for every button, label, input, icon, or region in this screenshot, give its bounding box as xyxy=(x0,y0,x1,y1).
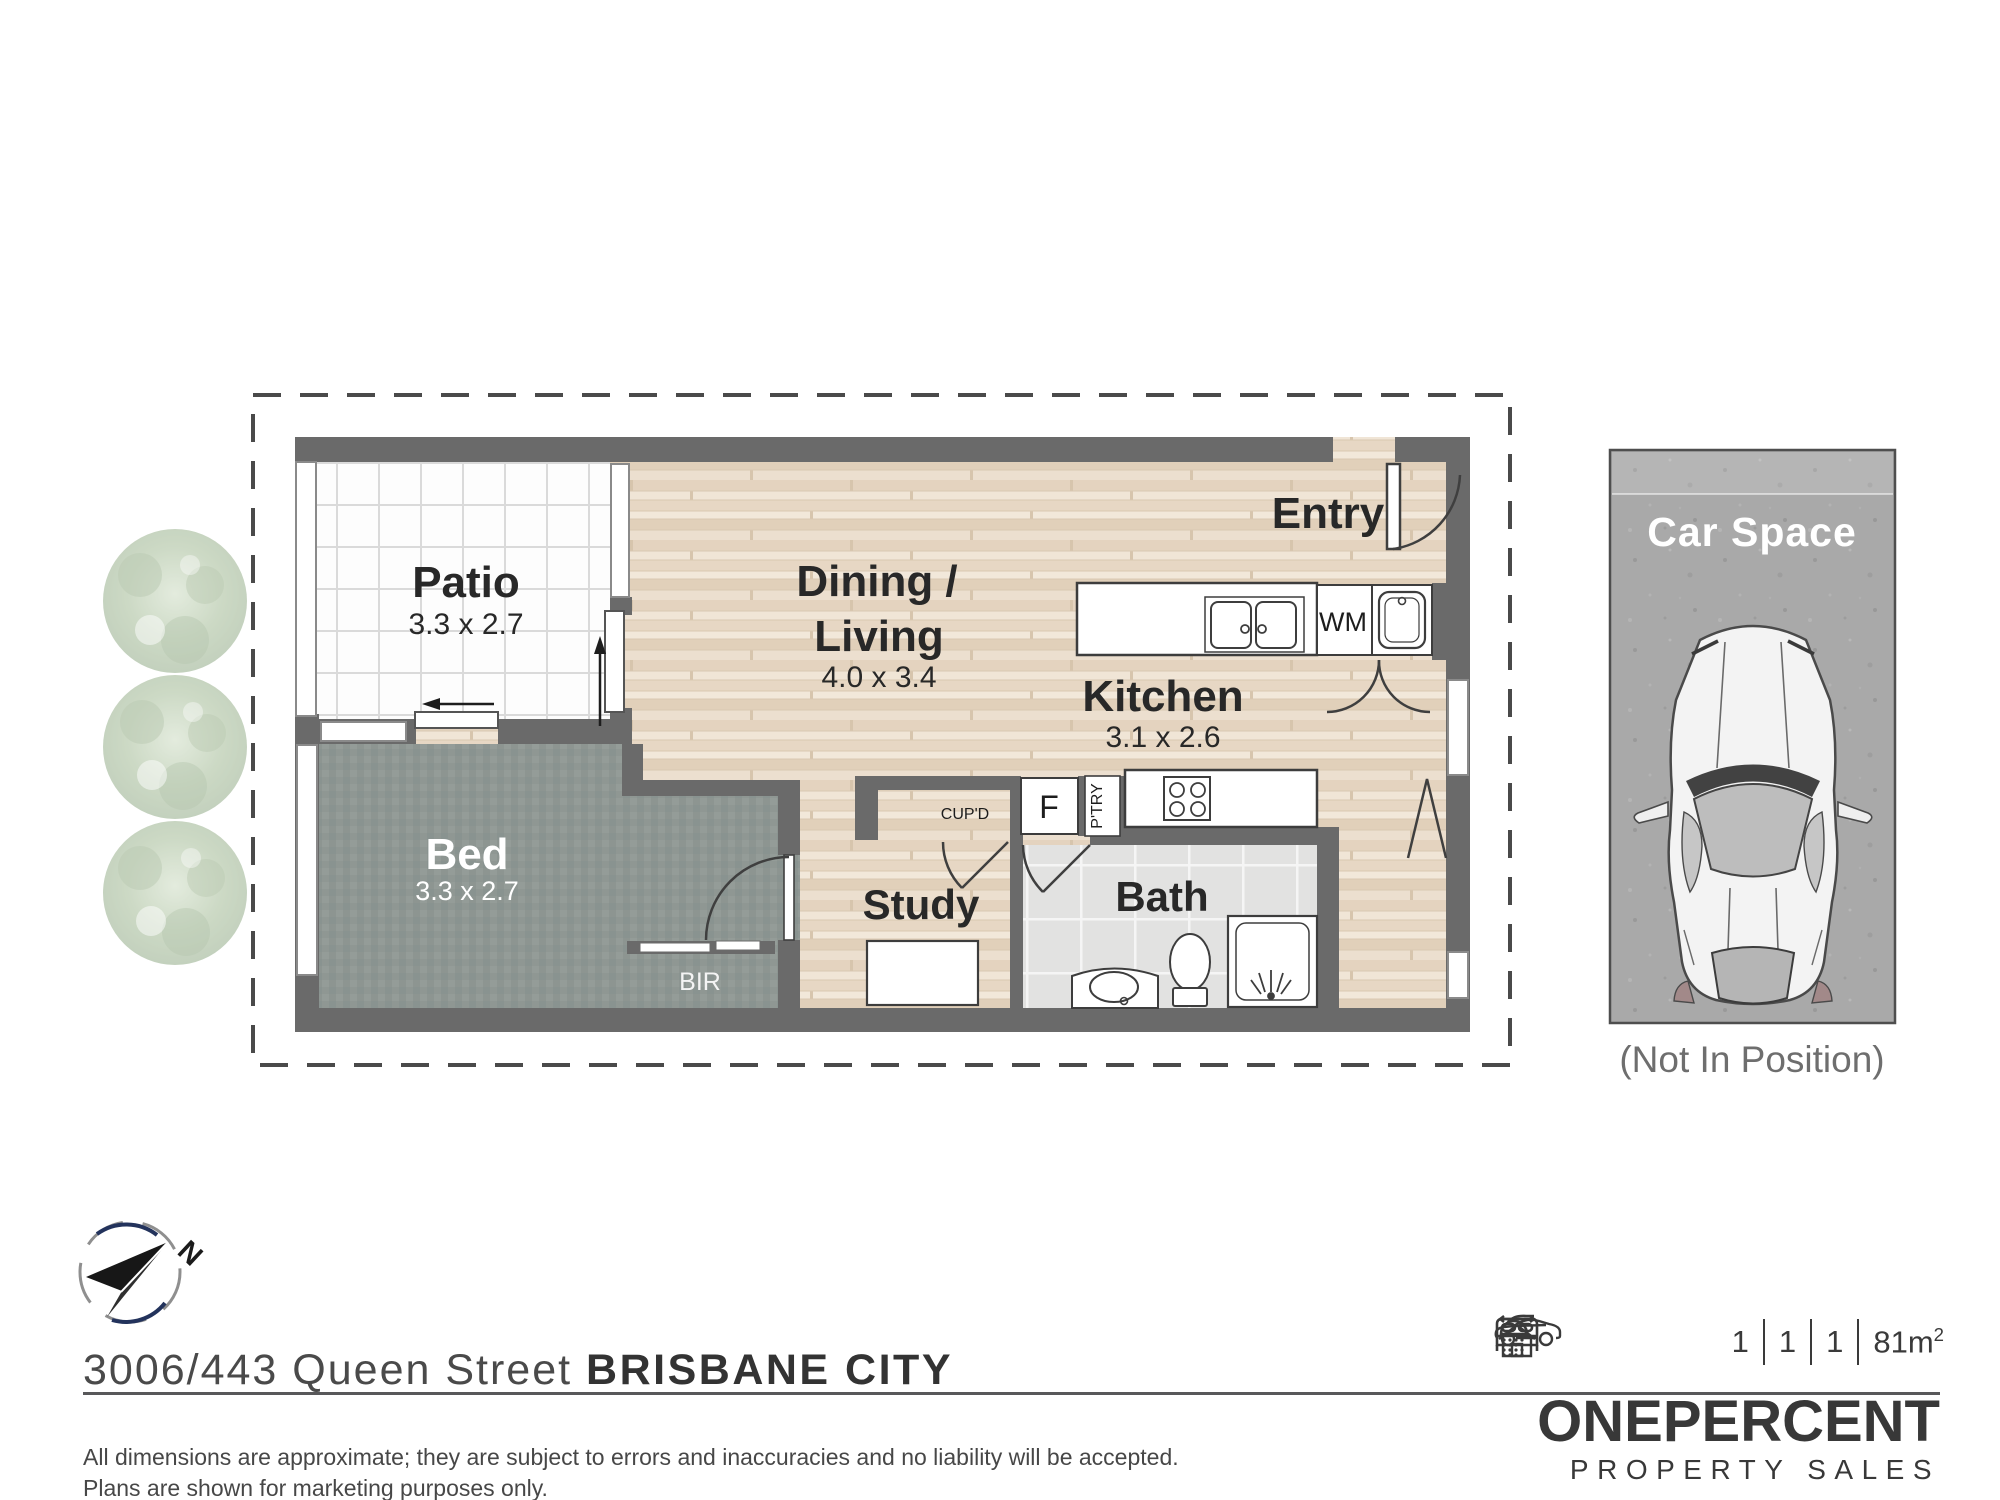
toilet xyxy=(1170,934,1210,990)
tree-row xyxy=(103,529,247,965)
tree-icon xyxy=(103,529,247,673)
disclaimer-line1: All dimensions are approximate; they are… xyxy=(83,1442,1179,1473)
room-dims-patio: 3.3 x 2.7 xyxy=(408,608,523,641)
room-label-patio: Patio xyxy=(412,558,520,607)
patio-balustrade xyxy=(296,462,316,716)
room-label-bed: Bed xyxy=(425,830,508,879)
room-label-entry: Entry xyxy=(1272,489,1385,538)
cooktop-bench xyxy=(1125,770,1317,827)
bed-left-window xyxy=(297,745,317,975)
label-cupboard: CUP'D xyxy=(941,806,989,823)
agency-logo-name: ONEPERCENT xyxy=(1537,1396,1940,1448)
study-desk xyxy=(867,941,978,1005)
right-window-upper xyxy=(1448,680,1468,775)
patio-bed-slider xyxy=(415,712,498,728)
room-dims-bed: 3.3 x 2.7 xyxy=(415,876,519,906)
address-suburb: BRISBANE CITY xyxy=(586,1346,953,1394)
bed-door-leaf xyxy=(784,855,794,940)
stats-divider xyxy=(1857,1319,1859,1365)
address-street: 3006/443 Queen Street xyxy=(83,1346,586,1394)
logo-one: ONE xyxy=(1537,1389,1663,1454)
car-space-caption: (Not In Position) xyxy=(1619,1039,1884,1080)
tree-icon xyxy=(103,821,247,965)
room-label-kitchen: Kitchen xyxy=(1082,672,1243,721)
compass: N xyxy=(80,1222,208,1322)
patio-living-window xyxy=(611,464,629,597)
stats-divider xyxy=(1763,1319,1765,1365)
room-dims-living: 4.0 x 3.4 xyxy=(821,661,936,694)
floorplan-page: Patio 3.3 x 2.7 Dining / Living 4.0 x 3.… xyxy=(0,0,2000,1500)
patio-living-slider xyxy=(605,611,624,712)
stats-divider xyxy=(1810,1319,1812,1365)
room-label-living: Living xyxy=(814,612,944,661)
room-label-study: Study xyxy=(863,881,980,928)
cars-count: 1 xyxy=(1824,1324,1845,1360)
agency-logo: ONEPERCENT PROPERTY SALES xyxy=(1537,1396,1940,1486)
right-window-lower xyxy=(1448,952,1468,998)
area-number: 81m xyxy=(1873,1324,1933,1359)
disclaimer-line2: Plans are shown for marketing purposes o… xyxy=(83,1473,1179,1500)
label-wm: WM xyxy=(1319,607,1367,637)
beds-count: 1 xyxy=(1730,1324,1751,1360)
area-icon xyxy=(1494,1314,1540,1360)
room-label-dining: Dining / xyxy=(796,557,957,606)
disclaimer: All dimensions are approximate; they are… xyxy=(83,1442,1179,1500)
label-bir: BIR xyxy=(679,968,721,996)
compass-needle xyxy=(86,1242,168,1291)
bir-shelf xyxy=(716,941,760,950)
property-address: 3006/443 Queen Street BRISBANE CITY xyxy=(83,1346,953,1395)
room-dims-kitchen: 3.1 x 2.6 xyxy=(1105,721,1220,754)
patio-bed-window xyxy=(321,722,406,741)
floorplan-canvas: Patio 3.3 x 2.7 Dining / Living 4.0 x 3.… xyxy=(0,0,2000,1500)
area-value: 81m2 xyxy=(1871,1324,1946,1360)
car-space-title: Car Space xyxy=(1647,509,1857,555)
bir-shelf xyxy=(640,943,710,952)
property-stats: 1 1 1 81m2 xyxy=(1494,1314,1946,1370)
entry-door-leaf xyxy=(1387,464,1400,549)
car-space: Car Space (Not In Position) xyxy=(1610,450,1895,1080)
room-label-bath: Bath xyxy=(1115,873,1208,920)
area-sup: 2 xyxy=(1934,1324,1944,1345)
label-fridge: F xyxy=(1039,789,1059,825)
logo-percent: PERCENT xyxy=(1663,1389,1940,1454)
compass-north-label: N xyxy=(171,1235,208,1273)
entry-doorway xyxy=(1333,437,1395,462)
baths-count: 1 xyxy=(1777,1324,1798,1360)
agency-logo-tagline: PROPERTY SALES xyxy=(1537,1454,1940,1486)
tree-icon xyxy=(103,675,247,819)
label-pantry: P'TRY xyxy=(1089,783,1106,829)
